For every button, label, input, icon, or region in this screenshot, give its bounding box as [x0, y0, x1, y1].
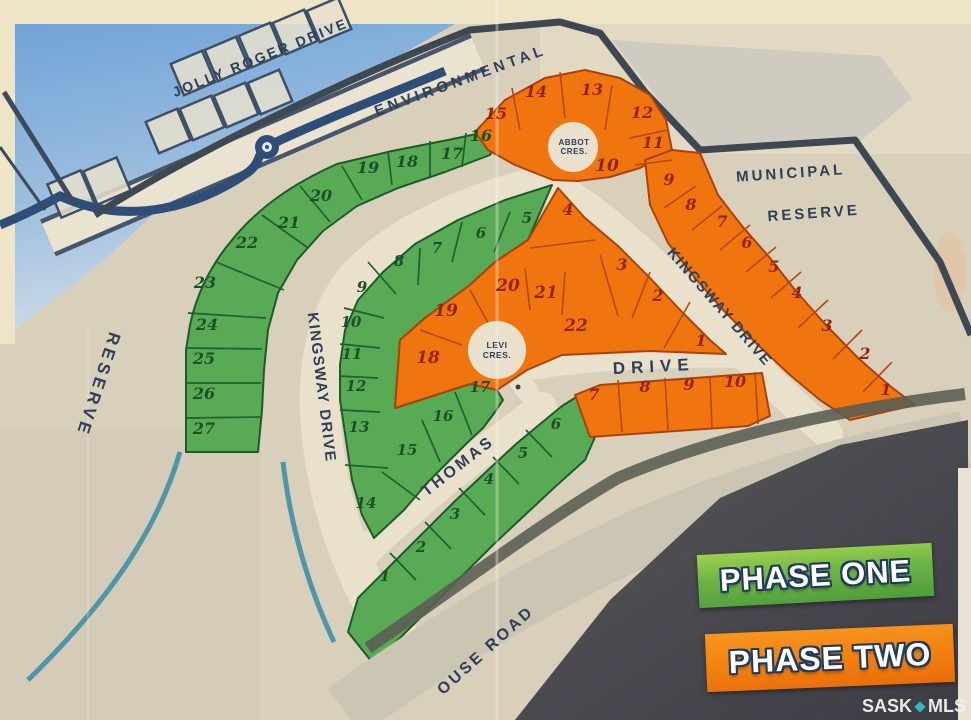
lot-number-phase-two-drive_row: 8: [638, 377, 650, 396]
lot-number-phase-two-drive_row: 9: [683, 375, 694, 394]
lot-number-phase-one-outer_ring: 20: [309, 186, 332, 205]
lot-number-phase-two-inner_block: 2: [651, 286, 663, 305]
phase-two-badge-label: PHASE TWO: [728, 635, 932, 680]
lot-number-phase-one-thomas_row: 5: [518, 444, 528, 462]
lot-number-phase-one-inner_ring: 17: [470, 378, 491, 396]
lot-number-phase-two-east_strip: 7: [716, 212, 727, 231]
mls-dot-icon: [914, 701, 925, 712]
photo-edge-right: [958, 468, 971, 720]
lot-number-phase-one-inner_ring: 10: [341, 313, 362, 331]
existing-culdesac-dot: [265, 145, 269, 149]
lot-number-phase-two-abbot_block: 12: [631, 103, 653, 122]
lot-number-phase-two-inner_block: 4: [562, 200, 573, 219]
phase-two-badge: PHASE TWO: [705, 624, 955, 692]
lot-number-phase-two-inner_block: 1: [695, 331, 706, 350]
lot-number-phase-two-east_strip: 3: [821, 316, 832, 335]
lot-number-phase-one-outer_ring: 26: [192, 384, 215, 403]
street-label-abbot-cres-line2: CRES.: [561, 147, 588, 156]
photo-smudge: [934, 232, 966, 312]
lot-number-phase-two-inner_block: 18: [416, 348, 440, 368]
phase-one-badge-label: PHASE ONE: [719, 553, 912, 599]
lot-number-phase-one-thomas_row: 2: [415, 538, 426, 556]
lot-number-phase-one-outer_ring: 19: [357, 158, 379, 177]
subdivision-map: 1617181920212223242526275678910111213141…: [0, 0, 971, 720]
lot-number-phase-two-east_strip: 4: [791, 283, 802, 302]
lot-number-phase-one-inner_ring: 5: [522, 209, 532, 227]
lot-number-phase-one-thomas_row: 6: [551, 415, 562, 433]
watermark-suffix: MLS: [928, 696, 966, 717]
lot-number-phase-two-abbot_block: 10: [595, 156, 619, 176]
lot-number-phase-one-outer_ring: 17: [441, 144, 463, 163]
lot-number-phase-one-inner_ring: 6: [476, 224, 487, 242]
lot-number-phase-one-inner_ring: 8: [394, 252, 405, 270]
plat-map-photo: 1617181920212223242526275678910111213141…: [0, 0, 971, 720]
lot-number-phase-two-inner_block: 3: [616, 255, 627, 274]
lot-number-phase-one-outer_ring: 27: [192, 419, 215, 438]
lot-number-phase-one-inner_ring: 7: [432, 239, 443, 257]
lot-number-phase-one-inner_ring: 13: [349, 418, 370, 436]
lot-number-phase-two-drive_row: 10: [724, 372, 746, 391]
lot-number-phase-one-inner_ring: 14: [356, 494, 377, 512]
lot-number-phase-one-outer_ring: 23: [193, 273, 216, 292]
lot-number-phase-one-outer_ring: 25: [192, 349, 215, 368]
lot-number-phase-two-abbot_block: 11: [642, 133, 664, 152]
lot-number-phase-two-abbot_block: 15: [485, 104, 507, 123]
lot-number-phase-two-east_strip: 9: [663, 170, 674, 189]
lot-number-phase-two-east_strip: 2: [858, 344, 870, 363]
lot-number-phase-one-inner_ring: 12: [346, 377, 367, 395]
lot-number-phase-two-abbot_block: 13: [581, 80, 603, 99]
lot-number-phase-two-east_strip: 8: [684, 195, 696, 214]
lot-number-phase-one-outer_ring: 22: [235, 233, 258, 252]
paper-shadow: [0, 430, 260, 720]
lot-number-phase-one-thomas_row: 1: [380, 567, 390, 585]
marker-dot: [516, 385, 521, 390]
street-label-levi-cres-line2: CRES.: [483, 350, 511, 360]
lot-number-phase-two-inner_block: 20: [495, 276, 520, 296]
lot-number-phase-one-inner_ring: 9: [357, 278, 368, 296]
sask-mls-watermark: SASK MLS: [862, 696, 966, 717]
street-label-abbot-cres-line1: ABBOT: [559, 138, 590, 147]
lot-number-phase-two-drive_row: 7: [588, 385, 599, 404]
lot-number-phase-one-inner_ring: 11: [342, 345, 363, 363]
lot-number-phase-two-inner_block: 21: [533, 283, 558, 303]
lot-number-phase-one-outer_ring: 24: [195, 315, 218, 334]
street-label-levi-cres-line1: LEVI: [487, 340, 508, 350]
photo-edge-top: [0, 0, 971, 24]
lot-number-phase-two-east_strip: 5: [768, 257, 779, 276]
lot-number-phase-one-thomas_row: 4: [484, 470, 494, 488]
lot-number-phase-one-inner_ring: 16: [433, 407, 454, 425]
watermark-prefix: SASK: [862, 696, 912, 717]
lot-number-phase-two-inner_block: 19: [434, 301, 458, 321]
lot-number-phase-one-outer_ring: 21: [277, 213, 300, 232]
lot-number-phase-two-east_strip: 6: [741, 233, 752, 252]
lot-number-phase-one-thomas_row: 3: [450, 505, 460, 523]
lot-number-phase-two-inner_block: 22: [563, 316, 588, 336]
lot-number-phase-one-outer_ring: 16: [470, 126, 492, 145]
lot-number-phase-two-abbot_block: 14: [525, 82, 547, 101]
lot-number-phase-one-inner_ring: 15: [397, 441, 418, 459]
lot-number-phase-two-east_strip: 1: [880, 380, 891, 399]
photo-edge-left: [0, 24, 15, 344]
lot-number-phase-one-outer_ring: 18: [396, 152, 418, 171]
